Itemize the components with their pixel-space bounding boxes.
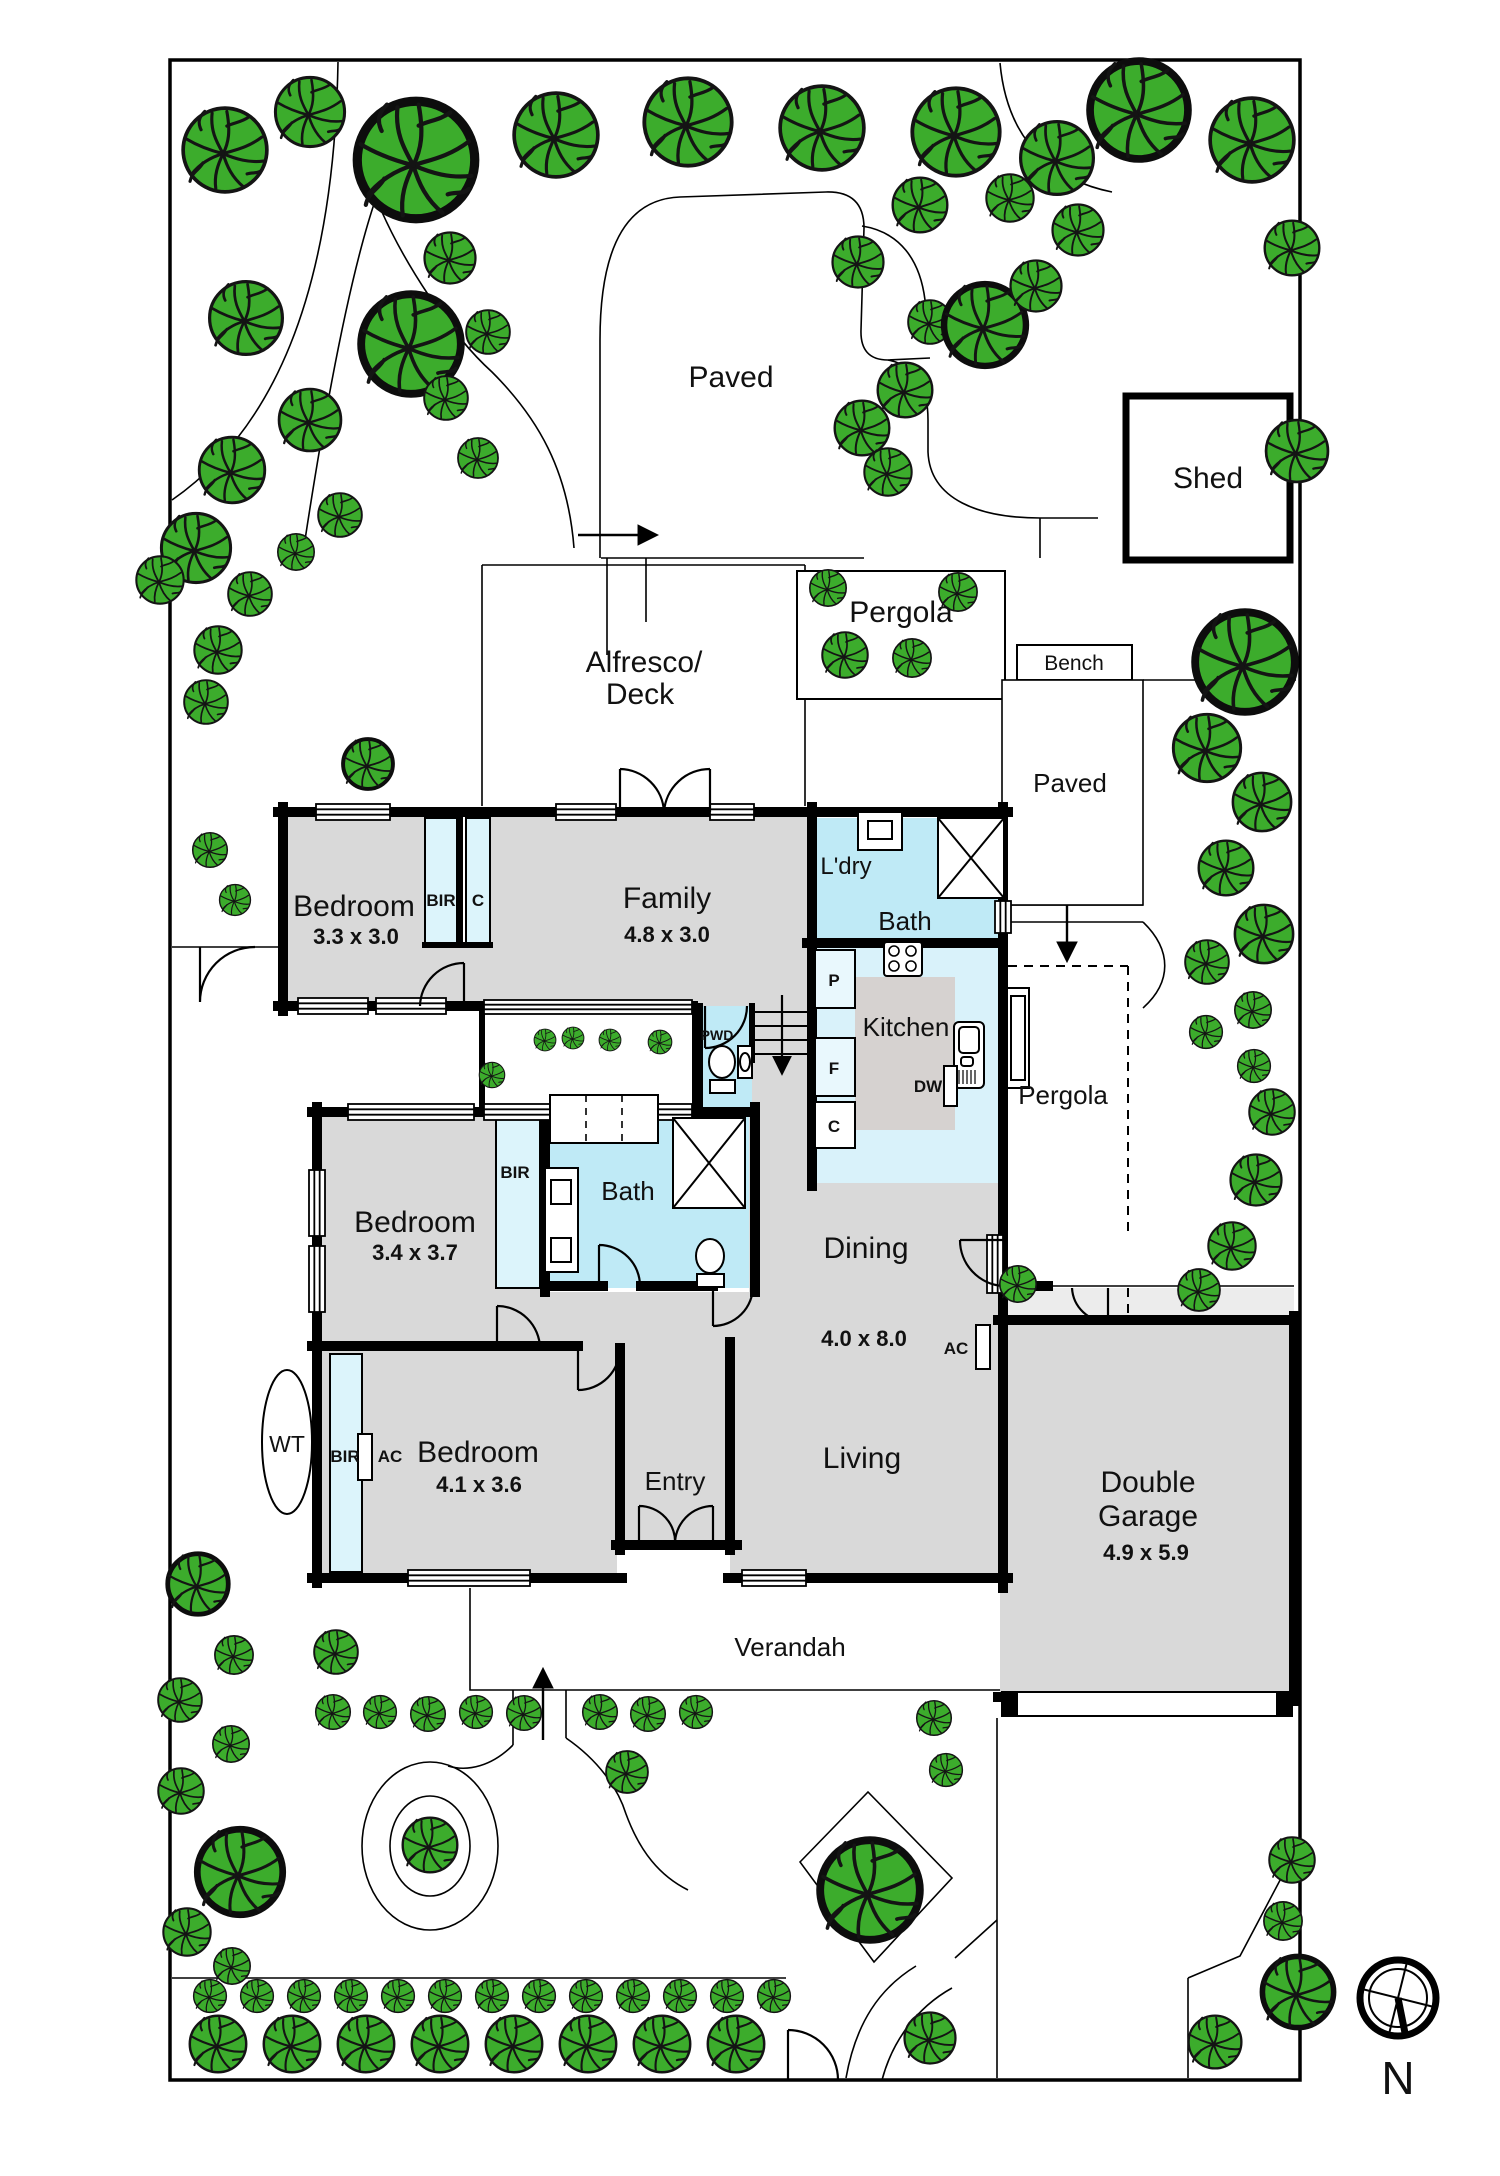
bedroom3-label: Bedroom <box>417 1436 539 1469</box>
tree-icon <box>403 1818 458 1873</box>
bir1-label: BIR <box>426 891 455 910</box>
tree-icon <box>190 2016 246 2072</box>
tree-icon <box>634 2016 690 2072</box>
tree-icon <box>570 1980 603 2013</box>
tree-icon <box>664 1980 697 2013</box>
tree-icon <box>1011 261 1062 312</box>
ac-unit-living <box>976 1325 990 1369</box>
tree-icon <box>486 2016 542 2072</box>
kitchen-bay-window <box>1007 988 1029 1088</box>
tree-icon <box>617 1980 650 2013</box>
tree-icon <box>1269 1837 1315 1883</box>
tree-icon <box>644 78 731 165</box>
tree-icon <box>1235 992 1271 1028</box>
tree-icon <box>466 310 510 354</box>
garage-label-2: Garage <box>1098 1500 1198 1533</box>
laundry-label: L'dry <box>820 853 871 880</box>
bedroom2-dims: 3.4 x 3.7 <box>372 1240 458 1265</box>
tree-icon <box>1195 612 1295 712</box>
entry-label: Entry <box>645 1466 706 1496</box>
tree-icon <box>279 389 341 451</box>
tree-icon <box>335 1980 368 2013</box>
ac-unit-bedroom <box>358 1434 372 1480</box>
tree-icon <box>864 448 911 495</box>
tree-icon <box>1173 714 1240 781</box>
tree-icon <box>820 1840 920 1940</box>
tree-icon <box>562 1027 584 1049</box>
tree-icon <box>893 178 948 233</box>
tree-icon <box>711 1980 744 2013</box>
bedroom2-label: Bedroom <box>354 1206 476 1239</box>
tree-icon <box>136 556 183 603</box>
window <box>298 998 368 1014</box>
family-dims: 4.8 x 3.0 <box>624 922 710 947</box>
floor-plan-page: Paved Shed Pergola Bench Paved Alfresco/… <box>0 0 1500 2176</box>
tree-icon <box>314 1630 358 1674</box>
tree-icon <box>1199 841 1254 896</box>
alfresco-label-1: Alfresco/ <box>586 646 703 679</box>
dishwasher-box <box>944 1066 957 1106</box>
window <box>995 901 1011 933</box>
tree-icon <box>343 739 393 789</box>
tree-icon <box>364 1696 397 1729</box>
tree-icon <box>680 1696 713 1729</box>
window <box>556 804 616 820</box>
basin-icon <box>738 1046 752 1078</box>
tree-icon <box>523 1980 556 2013</box>
paved-right-label: Paved <box>1033 768 1107 798</box>
tree-icon <box>382 1980 415 2013</box>
tree-icon <box>1189 2016 1242 2069</box>
family-label: Family <box>623 882 711 915</box>
window <box>309 1246 325 1312</box>
tree-icon <box>213 1726 249 1762</box>
tree-icon <box>1233 773 1291 831</box>
garage-label-1: Double <box>1100 1466 1195 1499</box>
window <box>408 1570 530 1586</box>
tree-icon <box>183 108 267 192</box>
tree-icon <box>214 1948 250 1984</box>
tree-icon <box>822 632 868 678</box>
tree-icon <box>193 833 228 868</box>
tree-icon <box>197 1829 282 1914</box>
side-porch <box>1002 1288 1294 1318</box>
bedroom3-dims: 4.1 x 3.6 <box>436 1472 522 1497</box>
tree-icon <box>905 2013 956 2064</box>
tree-icon <box>648 1030 672 1054</box>
tree-icon <box>220 885 251 916</box>
tree-icon <box>758 1980 791 2013</box>
tree-icon <box>163 1908 210 1955</box>
window <box>742 1570 806 1586</box>
tree-icon <box>168 1554 229 1615</box>
dining-label: Dining <box>823 1232 908 1265</box>
alfresco-label-2: Deck <box>606 678 675 711</box>
tree-icon <box>479 1062 504 1087</box>
paved-top-label: Paved <box>688 361 773 394</box>
shower-icon-main <box>673 1118 745 1208</box>
window <box>348 1104 474 1120</box>
tree-icon <box>158 1768 204 1814</box>
garage-dims: 4.9 x 5.9 <box>1103 1540 1189 1565</box>
tree-icon <box>1190 1016 1223 1049</box>
vanity-icon <box>545 1168 578 1272</box>
tree-icon <box>1265 221 1320 276</box>
fridge-label: F <box>829 1059 839 1078</box>
tree-icon <box>194 626 241 673</box>
tree-icon <box>158 1678 202 1722</box>
window <box>309 1170 325 1236</box>
pantry-label: P <box>828 971 839 990</box>
tree-icon <box>429 1980 462 2013</box>
tree-icon <box>278 534 314 570</box>
shed-label: Shed <box>1173 462 1243 495</box>
tree-icon <box>425 233 476 284</box>
site-plan: Paved Shed Pergola Bench Paved Alfresco/… <box>0 0 1500 2176</box>
tree-icon <box>780 86 864 170</box>
tree-icon <box>599 1029 621 1051</box>
bedroom1-label: Bedroom <box>293 890 415 923</box>
tree-icon <box>228 572 272 616</box>
tree-icon <box>810 570 846 606</box>
tree-icon <box>1021 122 1094 195</box>
tree-icon <box>917 1701 952 1736</box>
garage-door <box>1002 1692 1292 1716</box>
tree-icon <box>930 1754 963 1787</box>
tree-icon <box>1208 1222 1255 1269</box>
wt-label: WT <box>269 1431 305 1457</box>
tree-icon <box>833 237 884 288</box>
north-label: N <box>1381 2052 1414 2104</box>
north-compass-icon: N <box>1360 1960 1436 2104</box>
bir2-label: BIR <box>500 1163 529 1182</box>
tree-icon <box>1266 420 1328 482</box>
bench-label: Bench <box>1044 652 1104 675</box>
bath-main-label: Bath <box>601 1176 655 1206</box>
dw-label: DW <box>914 1077 943 1096</box>
tree-icon <box>583 1695 618 1730</box>
ac-living-label: AC <box>944 1339 969 1358</box>
bir3-label: BIR <box>330 1447 359 1466</box>
tree-icon <box>318 493 362 537</box>
tree-icon <box>560 2016 616 2072</box>
tree-icon <box>411 1697 446 1732</box>
tree-icon <box>338 2016 394 2072</box>
tree-icon <box>194 1980 227 2013</box>
tree-icon <box>264 2016 320 2072</box>
tree-icon <box>241 1980 274 2013</box>
tree-icon <box>912 88 999 175</box>
tree-icon <box>424 376 468 420</box>
ac-bedroom-label: AC <box>378 1447 403 1466</box>
window <box>316 804 390 820</box>
window <box>484 1000 692 1014</box>
tree-icon <box>708 2016 764 2072</box>
tree-icon <box>412 2016 468 2072</box>
tree-icon <box>1264 1902 1302 1940</box>
tree-icon <box>1185 940 1229 984</box>
tree-icon <box>275 77 344 146</box>
tree-icon <box>460 1696 493 1729</box>
kitchen-label: Kitchen <box>863 1012 950 1042</box>
tree-icon <box>893 639 931 677</box>
tree-icon <box>1000 1266 1036 1302</box>
toilet-icon <box>709 1046 735 1093</box>
tree-icon <box>357 101 474 218</box>
c1-label: C <box>472 891 484 910</box>
bath-rear-label: Bath <box>878 906 932 936</box>
tree-icon <box>316 1695 351 1730</box>
tree-icon <box>1235 905 1293 963</box>
verandah-label: Verandah <box>734 1632 845 1662</box>
tree-icon <box>1178 1269 1220 1311</box>
tree-icon <box>631 1697 666 1732</box>
tree-icon <box>878 363 933 418</box>
pergola-right-label: Pergola <box>1018 1080 1108 1110</box>
living-label: Living <box>823 1442 901 1475</box>
cooktop-icon <box>884 942 922 976</box>
tree-icon <box>1090 61 1188 159</box>
pergola-top-label: Pergola <box>849 596 953 629</box>
tree-icon <box>210 282 283 355</box>
tree-icon <box>507 1696 542 1731</box>
tree-icon <box>184 680 228 724</box>
bath-bench <box>550 1095 658 1143</box>
tree-icon <box>606 1751 648 1793</box>
tree-icon <box>534 1029 556 1051</box>
tree-icon <box>514 93 598 177</box>
tree-icon <box>458 438 498 478</box>
cupboard-label: C <box>828 1117 840 1136</box>
tree-icon <box>288 1980 321 2013</box>
tree-icon <box>1231 1155 1282 1206</box>
tree-icon <box>1262 1956 1333 2027</box>
tree-icon <box>215 1636 253 1674</box>
tree-icon <box>476 1980 509 2013</box>
tree-icon <box>1210 98 1294 182</box>
toilet-icon-main <box>696 1239 724 1287</box>
tree-icon <box>1249 1089 1295 1135</box>
tree-icon <box>1238 1050 1271 1083</box>
tree-icon <box>199 437 265 503</box>
tree-icon <box>835 401 890 456</box>
tree-icon <box>1053 205 1104 256</box>
pwd-label: PWD <box>701 1027 734 1043</box>
window <box>376 998 446 1014</box>
shower-icon <box>938 818 1004 898</box>
laundry-sink-icon <box>858 812 902 850</box>
bedroom1-dims: 3.3 x 3.0 <box>313 924 399 949</box>
dining-living-dims: 4.0 x 8.0 <box>821 1326 907 1351</box>
window <box>710 804 754 820</box>
tree-icon <box>986 174 1033 221</box>
fridge-icon <box>954 1022 984 1088</box>
